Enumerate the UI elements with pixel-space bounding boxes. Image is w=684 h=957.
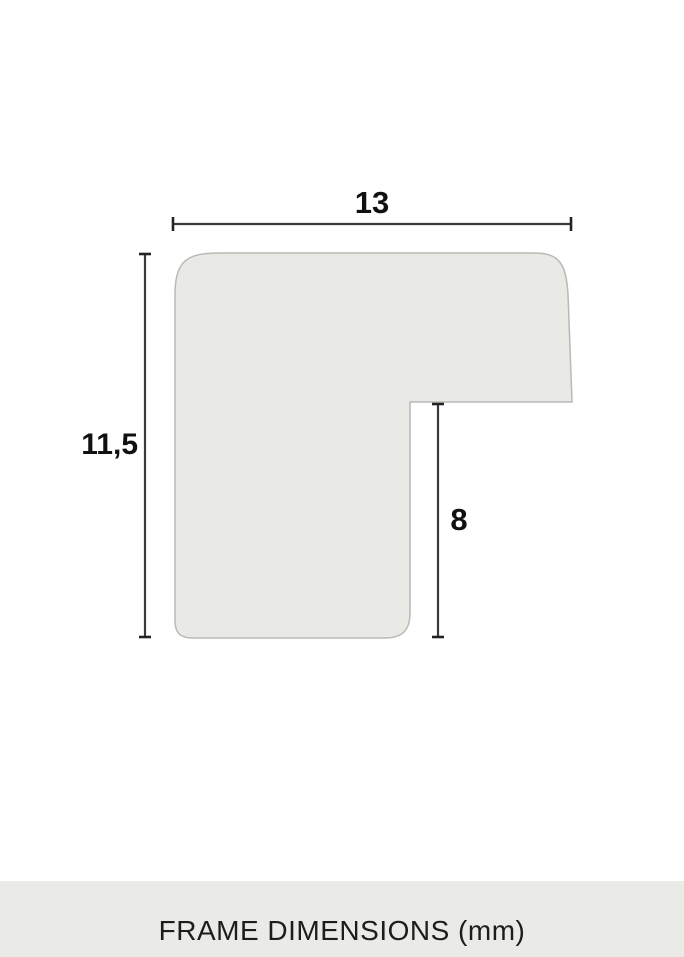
frame-profile-shape <box>175 253 572 638</box>
height-dimension-line <box>139 254 151 637</box>
footer-bar: FRAME DIMENSIONS (mm) <box>0 881 684 957</box>
height-dimension-label: 11,5 <box>40 430 138 460</box>
frame-cross-section-diagram: 13 11,5 8 <box>0 0 684 881</box>
footer-caption: FRAME DIMENSIONS (mm) <box>159 916 526 946</box>
width-dimension-label: 13 <box>342 187 402 218</box>
rabbet-dimension-line <box>432 404 444 637</box>
rabbet-dimension-label: 8 <box>446 504 472 535</box>
frame-dimensions-diagram-page: 13 11,5 8 FRAME DIMENSIONS (mm) <box>0 0 684 957</box>
